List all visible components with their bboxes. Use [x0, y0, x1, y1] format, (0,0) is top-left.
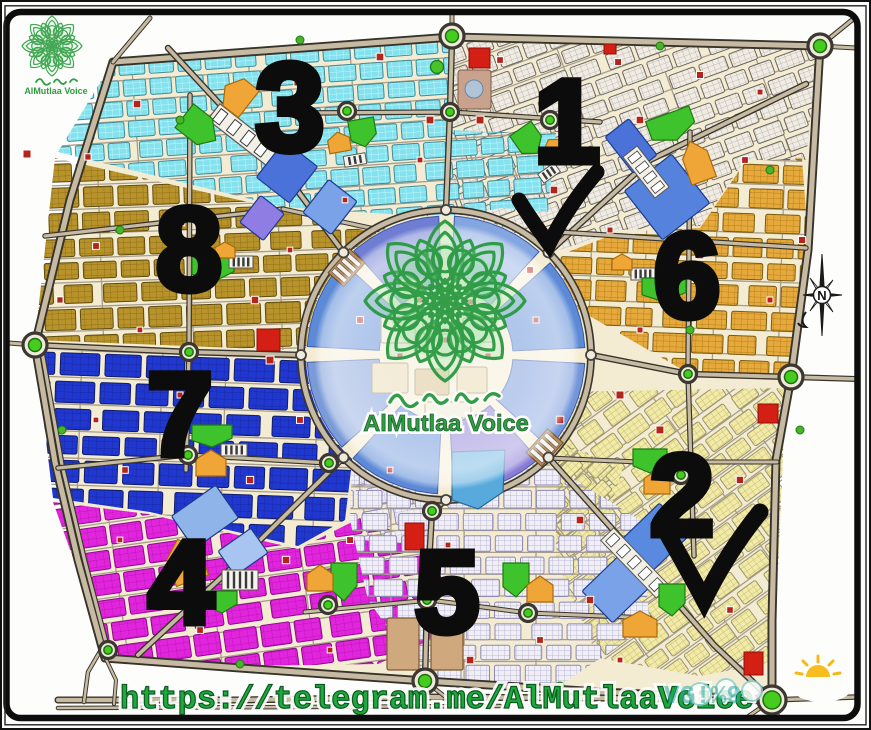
svg-text:7: 7: [147, 349, 213, 481]
svg-text:6: 6: [654, 209, 721, 343]
svg-text:2: 2: [650, 432, 714, 560]
svg-text:https://telegram.me/AlMutlaaVo: https://telegram.me/AlMutlaaVoice: [120, 681, 754, 718]
svg-text:5: 5: [415, 527, 480, 657]
svg-text:4: 4: [148, 517, 214, 649]
svg-text:N: N: [817, 288, 826, 303]
svg-text:VG!%9: VG!%9: [664, 681, 742, 711]
svg-text:3: 3: [256, 39, 325, 177]
svg-text:1: 1: [534, 56, 600, 188]
svg-text:AlMutlaa Voice: AlMutlaa Voice: [363, 410, 528, 436]
svg-text:AlMutlaa Voice: AlMutlaa Voice: [24, 86, 87, 96]
svg-text:8: 8: [156, 184, 222, 316]
